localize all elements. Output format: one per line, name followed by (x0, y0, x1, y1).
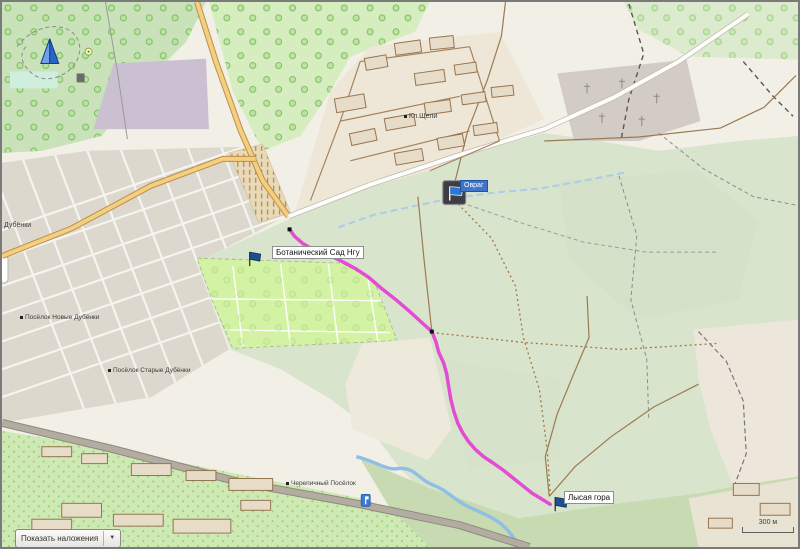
track-point[interactable] (288, 227, 292, 231)
place-label-novye-dubenki: Посёлок Новые Дубёнки (20, 314, 99, 322)
place-label-starye-dubenki: Посёлок Старые Дубёнки (108, 367, 190, 375)
poi-info-icon (85, 48, 92, 55)
map-canvas[interactable] (2, 2, 798, 547)
chevron-down-icon: ▼ (103, 531, 115, 546)
map-window: Дубёнки Посёлок Новые Дубёнки Посёлок Ст… (0, 0, 800, 549)
waypoint-label-lysaya[interactable]: Лысая гора (564, 491, 614, 504)
scale-bar-label: 300 м (742, 519, 794, 527)
map-terrain (2, 2, 798, 547)
place-label-dubenki: Дубёнки (4, 222, 31, 230)
track-point[interactable] (430, 330, 434, 334)
show-overlays-label: Показать наложения (21, 534, 98, 543)
scale-bar-line (742, 527, 794, 533)
waypoint-label-botgarden[interactable]: Ботанический Сад Нгу (272, 246, 364, 259)
poi-marker-icon (361, 494, 370, 506)
place-label-kl-shcheli: Кл.Щели (404, 113, 437, 121)
show-overlays-button[interactable]: Показать наложения ▼ (15, 529, 121, 548)
waypoint-label-ovrag[interactable]: Овраг (460, 180, 488, 192)
scale-bar: 300 м (742, 519, 794, 533)
place-label-cherepichny: Черепичный Посёлок (286, 480, 356, 488)
